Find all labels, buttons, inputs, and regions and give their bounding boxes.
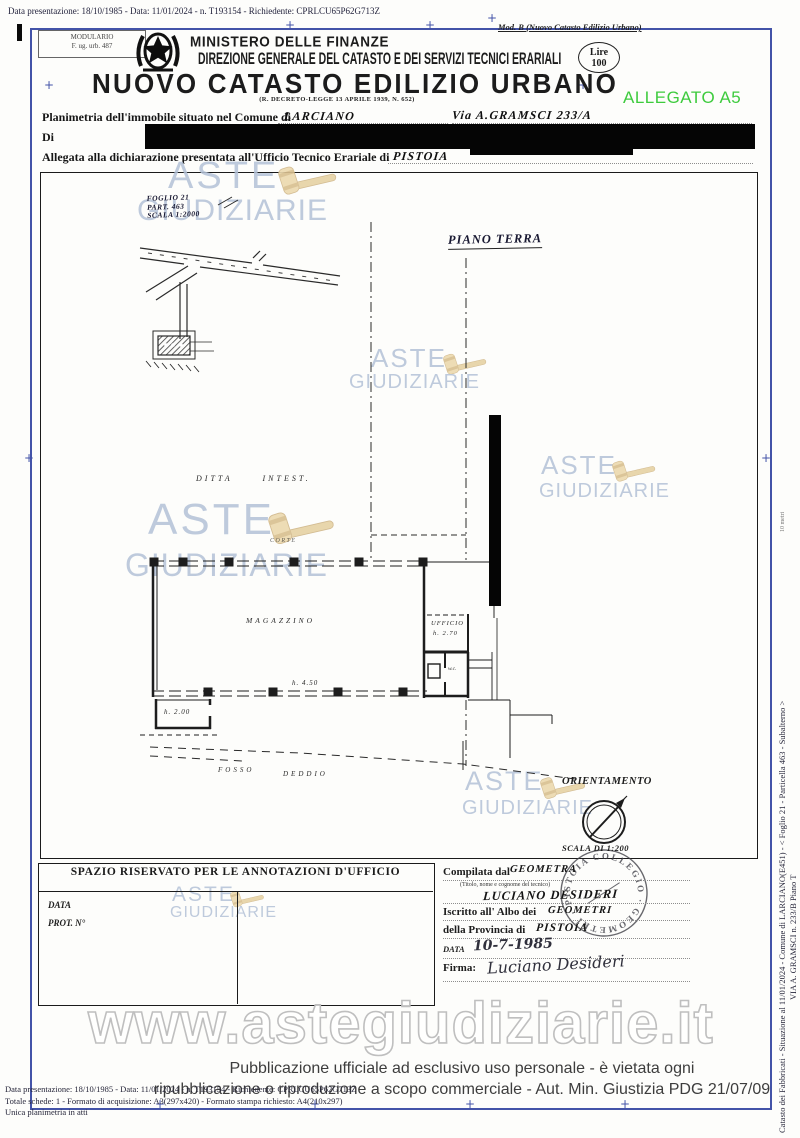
- room-wc-label: w.c.: [448, 666, 456, 672]
- floor-label: PIANO TERRA: [448, 231, 542, 250]
- edge-code: 10 metri: [780, 512, 786, 532]
- albo-value: GEOMETRI: [548, 905, 613, 916]
- form-line1-via: Via A.GRAMSCI 233/A: [451, 108, 593, 123]
- registration-tick: +: [44, 79, 54, 91]
- field-dotted-line: [443, 879, 690, 881]
- plan-scale-label: SCALA DI 1:200: [562, 843, 629, 853]
- registration-tick: +: [487, 12, 497, 24]
- watermark-aste: ASTE: [168, 157, 279, 195]
- field-dotted-line: [443, 919, 690, 921]
- watermark-giudiziarie: GIUDIZIARIE: [349, 372, 480, 392]
- modulario-line1: MODULARIO: [39, 33, 145, 42]
- allegato-label: ALLEGATO A5: [623, 88, 741, 108]
- watermark-aste: ASTE: [148, 498, 275, 542]
- direction-title: DIREZIONE GENERALE DEL CATASTO E DEI SER…: [198, 50, 561, 68]
- province-value: PISTOIA: [535, 922, 588, 934]
- tech-hint: (Titolo, nome e cognome del tecnico): [460, 882, 550, 888]
- province-label: della Provincia di: [443, 924, 525, 936]
- fosso-label: FOSSO: [218, 766, 254, 774]
- modulario-box: MODULARIO F. ug. urb. 487: [38, 30, 146, 58]
- annotations-divider-v: [237, 891, 238, 1004]
- room-main-label: MAGAZZINO: [246, 616, 315, 625]
- date-label: DATA: [443, 944, 465, 954]
- watermark-giudiziarie: GIUDIZIARIE: [539, 481, 670, 501]
- room-main-height: h. 4.50: [292, 679, 318, 687]
- room-office-height: h. 2.70: [433, 630, 458, 637]
- scan-corner-mark: [17, 24, 22, 41]
- sheet-note: FOGLIO 21 PART. 463 SCALA 1:2000: [147, 193, 200, 220]
- field-dotted-line: [443, 980, 690, 982]
- compiled-label: Compilata dal: [443, 866, 510, 878]
- watermark-aste: ASTE: [371, 345, 447, 371]
- compiled-value: GEOMETRA: [510, 864, 578, 875]
- footer-meta-line2: Totale schede: 1 - Formato di acquisizio…: [5, 1096, 342, 1106]
- watermark-aste: ASTE: [541, 452, 617, 478]
- room-small-height: h. 2.00: [164, 708, 190, 716]
- ministry-title: MINISTERO DELLE FINANZE: [190, 33, 389, 50]
- field-dotted-line: [443, 902, 690, 904]
- annotations-data-label: DATA: [48, 900, 71, 910]
- registration-tick: +: [465, 1098, 475, 1110]
- registration-tick: +: [285, 19, 295, 31]
- ditta-label: DITTA INTEST.: [196, 474, 311, 483]
- sign-label: Firma:: [443, 962, 476, 974]
- registration-tick: +: [761, 452, 771, 464]
- sheet-note-scala: SCALA 1:2000: [147, 210, 200, 220]
- disclaimer-line1: Pubblicazione ufficiale ad esclusivo uso…: [112, 1060, 800, 1078]
- side-text-line2: VIA A. GRAMSCI n. 233/B Piano T: [788, 875, 798, 1000]
- date-value: 10-7-1985: [473, 936, 553, 955]
- footer-meta-line3: Unica planimetria in atti: [5, 1107, 88, 1117]
- albo-label: Iscritto all' Albo dei: [443, 906, 536, 918]
- form-line1-label: Planimetria dell'immobile situato nel Co…: [42, 110, 291, 125]
- side-text-line1: Catasto dei Fabbricati - Situazione al 1…: [777, 701, 787, 1133]
- orientation-label: ORIENTAMENTO: [562, 776, 652, 787]
- annotations-prot-label: PROT. N°: [48, 918, 85, 928]
- redaction-bar: [145, 124, 755, 149]
- form-line2-label: Di: [42, 130, 54, 145]
- cadastral-document-page: + + + + + + + + + + + Data presentazione…: [0, 0, 800, 1138]
- mod-b-label: Mod. B (Nuovo Catasto Edilizio Urbano): [498, 22, 642, 32]
- scan-top-meta: Data presentazione: 18/10/1985 - Data: 1…: [8, 6, 380, 16]
- room-office-label: UFFICIO: [431, 620, 464, 627]
- lire-stamp: Lire 100: [578, 42, 620, 73]
- watermark-giudiziarie: GIUDIZIARIE: [462, 798, 593, 818]
- redaction-bar: [470, 142, 633, 155]
- deddio-label: DEDDIO: [283, 770, 328, 778]
- registration-tick: +: [425, 19, 435, 31]
- url-watermark: www.astegiudiziarie.it: [45, 990, 757, 1057]
- modulario-line2: F. ug. urb. 487: [39, 42, 145, 51]
- form-dotted-line: [388, 162, 753, 164]
- registration-tick: +: [24, 452, 34, 464]
- lire-word: Lire: [579, 47, 619, 58]
- decree-subtitle: (R. DECRETO-LEGGE 13 APRILE 1939, N. 652…: [237, 96, 437, 103]
- corte-label: CORTE: [270, 538, 297, 544]
- lire-amount: 100: [579, 58, 619, 69]
- watermark-aste: ASTE: [465, 768, 544, 795]
- footer-meta-line1: Data presentazione: 18/10/1985 - Data: 1…: [5, 1084, 356, 1094]
- watermark-giudiziarie: GIUDIZIARIE: [125, 549, 328, 581]
- annotations-title: SPAZIO RISERVATO PER LE ANNOTAZIONI D'UF…: [38, 866, 433, 878]
- registration-tick: +: [620, 1098, 630, 1110]
- annotations-divider-h: [38, 891, 433, 892]
